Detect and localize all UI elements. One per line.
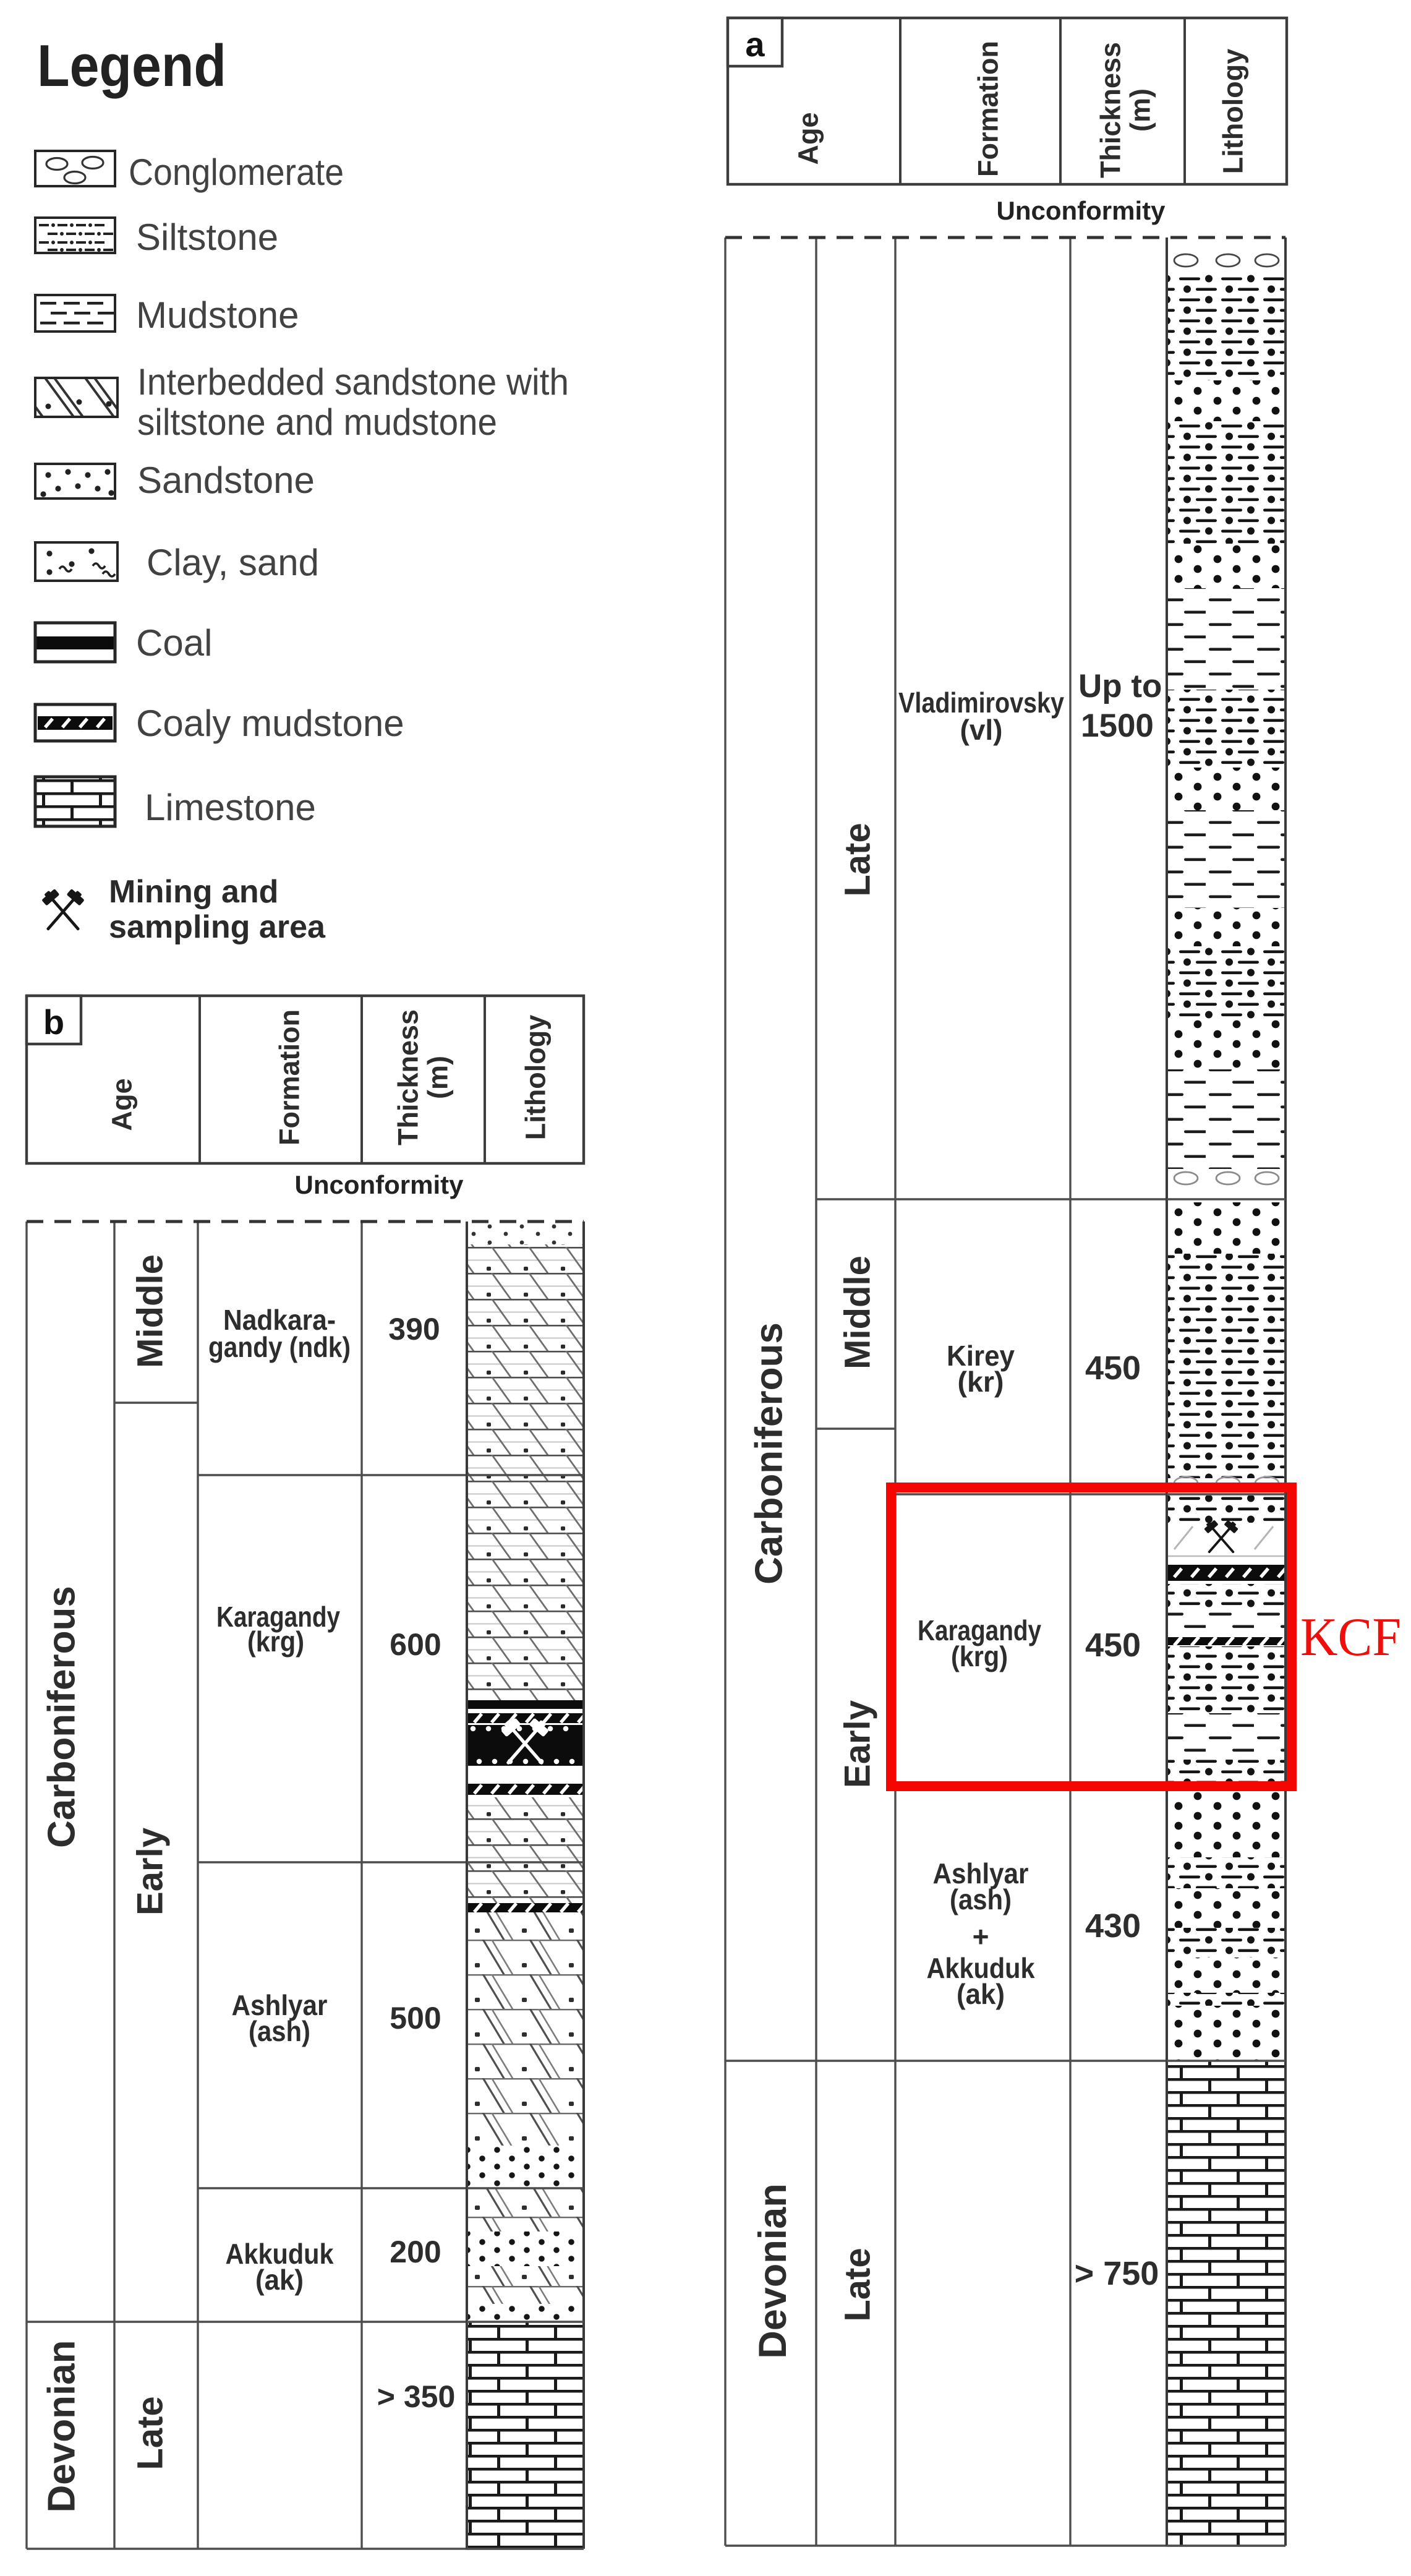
svg-text:(ash): (ash): [950, 1883, 1012, 1915]
svg-text:Clay, sand: Clay, sand: [147, 542, 319, 583]
svg-text:Devonian: Devonian: [41, 2340, 83, 2512]
svg-text:450: 450: [1085, 1627, 1141, 1664]
svg-text:Carboniferous: Carboniferous: [748, 1322, 791, 1585]
svg-text:Thickness: Thickness: [393, 1009, 424, 1145]
svg-text:Middle: Middle: [130, 1254, 171, 1368]
svg-text:430: 430: [1085, 1907, 1141, 1945]
svg-text:Late: Late: [838, 2248, 878, 2321]
svg-text:Siltstone: Siltstone: [136, 216, 278, 258]
svg-text:450: 450: [1085, 1350, 1141, 1387]
svg-text:Formation: Formation: [973, 41, 1004, 177]
svg-text:(ak): (ak): [957, 1978, 1005, 2010]
svg-text:600: 600: [390, 1627, 441, 1662]
svg-text:Sandstone: Sandstone: [137, 460, 315, 501]
svg-text:Devonian: Devonian: [751, 2183, 795, 2359]
svg-text:siltstone and mudstone: siltstone and mudstone: [137, 401, 497, 443]
svg-text:Lithology: Lithology: [1217, 49, 1249, 174]
svg-text:Coal: Coal: [136, 622, 212, 664]
svg-text:Thickness: Thickness: [1095, 42, 1127, 178]
svg-text:Formation: Formation: [274, 1009, 305, 1145]
svg-text:(krg): (krg): [951, 1640, 1008, 1672]
svg-text:Lithology: Lithology: [520, 1015, 552, 1140]
svg-text:(vl): (vl): [960, 714, 1003, 746]
svg-text:Coaly mudstone: Coaly mudstone: [136, 703, 404, 744]
svg-text:Age: Age: [106, 1078, 138, 1131]
svg-text:(m): (m): [422, 1056, 454, 1099]
svg-text:Unconformity: Unconformity: [295, 1170, 464, 1199]
svg-text:1500: 1500: [1081, 708, 1154, 744]
svg-text:Mining and: Mining and: [109, 874, 278, 910]
svg-text:Unconformity: Unconformity: [997, 196, 1166, 225]
svg-text:Limestone: Limestone: [145, 787, 316, 828]
svg-text:Early: Early: [130, 1828, 171, 1915]
svg-text:KCF: KCF: [1300, 1607, 1401, 1667]
svg-text:(kr): (kr): [958, 1366, 1004, 1398]
svg-text:gandy (ndk): gandy (ndk): [208, 1331, 351, 1363]
svg-text:(m): (m): [1125, 88, 1156, 132]
svg-text:Middle: Middle: [838, 1256, 878, 1369]
svg-text:> 350: > 350: [377, 2379, 456, 2414]
svg-text:390: 390: [388, 1312, 440, 1346]
svg-text:Age: Age: [793, 112, 824, 165]
svg-text:> 750: > 750: [1075, 2255, 1159, 2292]
svg-text:a: a: [745, 25, 765, 64]
svg-text:Early: Early: [838, 1700, 878, 1788]
svg-text:(ash): (ash): [249, 2015, 310, 2047]
svg-text:+: +: [973, 1920, 989, 1953]
svg-text:Mudstone: Mudstone: [136, 294, 299, 336]
svg-text:Late: Late: [130, 2396, 171, 2470]
svg-text:b: b: [43, 1003, 64, 1042]
svg-text:Interbedded sandstone with: Interbedded sandstone with: [137, 361, 569, 403]
svg-text:Carboniferous: Carboniferous: [41, 1586, 83, 1848]
svg-text:200: 200: [390, 2235, 441, 2269]
svg-text:Legend: Legend: [37, 33, 226, 99]
svg-text:500: 500: [390, 2001, 441, 2035]
svg-text:Late: Late: [838, 823, 878, 896]
svg-text:Conglomerate: Conglomerate: [129, 152, 344, 193]
svg-text:(krg): (krg): [247, 1625, 304, 1658]
svg-text:Up to: Up to: [1078, 668, 1162, 704]
svg-text:(ak): (ak): [255, 2264, 304, 2296]
svg-text:sampling area: sampling area: [109, 909, 326, 945]
